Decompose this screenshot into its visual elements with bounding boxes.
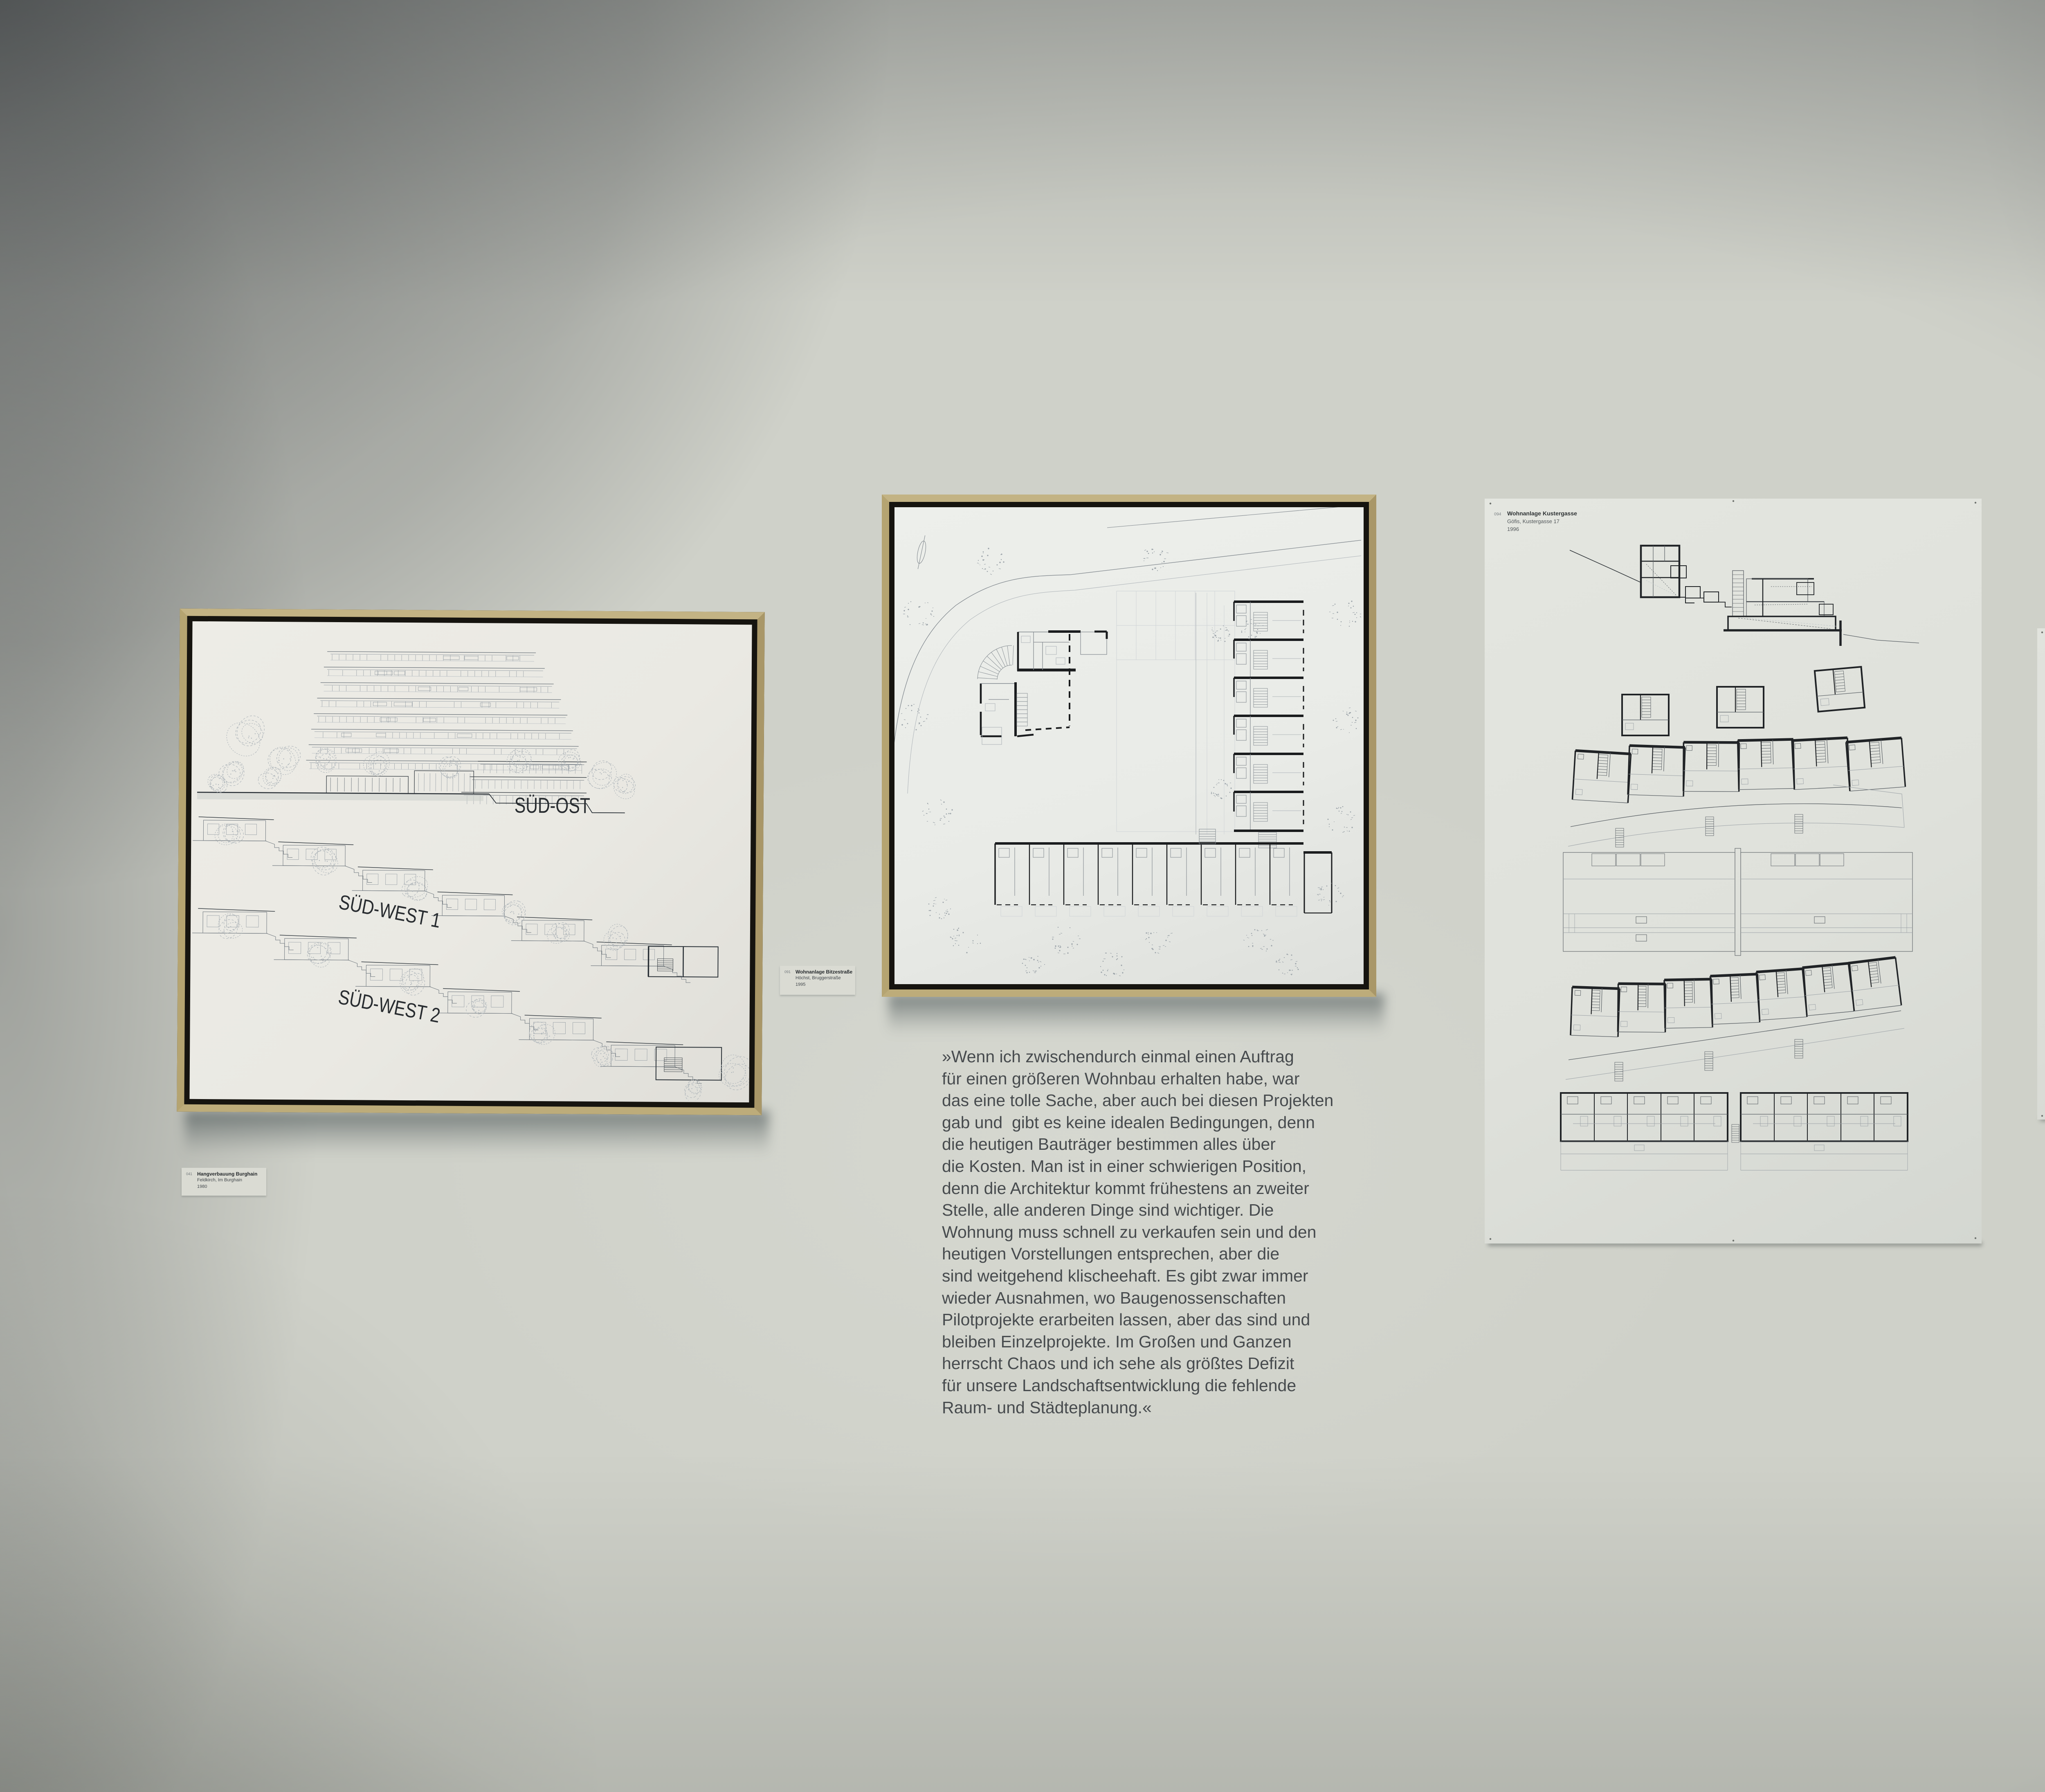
svg-text:1996: 1996 [1507,526,1519,532]
svg-text:Göfis, Kustergasse 17: Göfis, Kustergasse 17 [1507,518,1560,524]
svg-text:Wohnanlage Kustergasse: Wohnanlage Kustergasse [1507,510,1577,517]
svg-text:094: 094 [1494,512,1501,517]
svg-text:SÜD-OST: SÜD-OST [515,794,590,818]
svg-text:SÜD-WEST 2: SÜD-WEST 2 [337,985,442,1027]
svg-text:SÜD-WEST 1: SÜD-WEST 1 [337,890,443,932]
